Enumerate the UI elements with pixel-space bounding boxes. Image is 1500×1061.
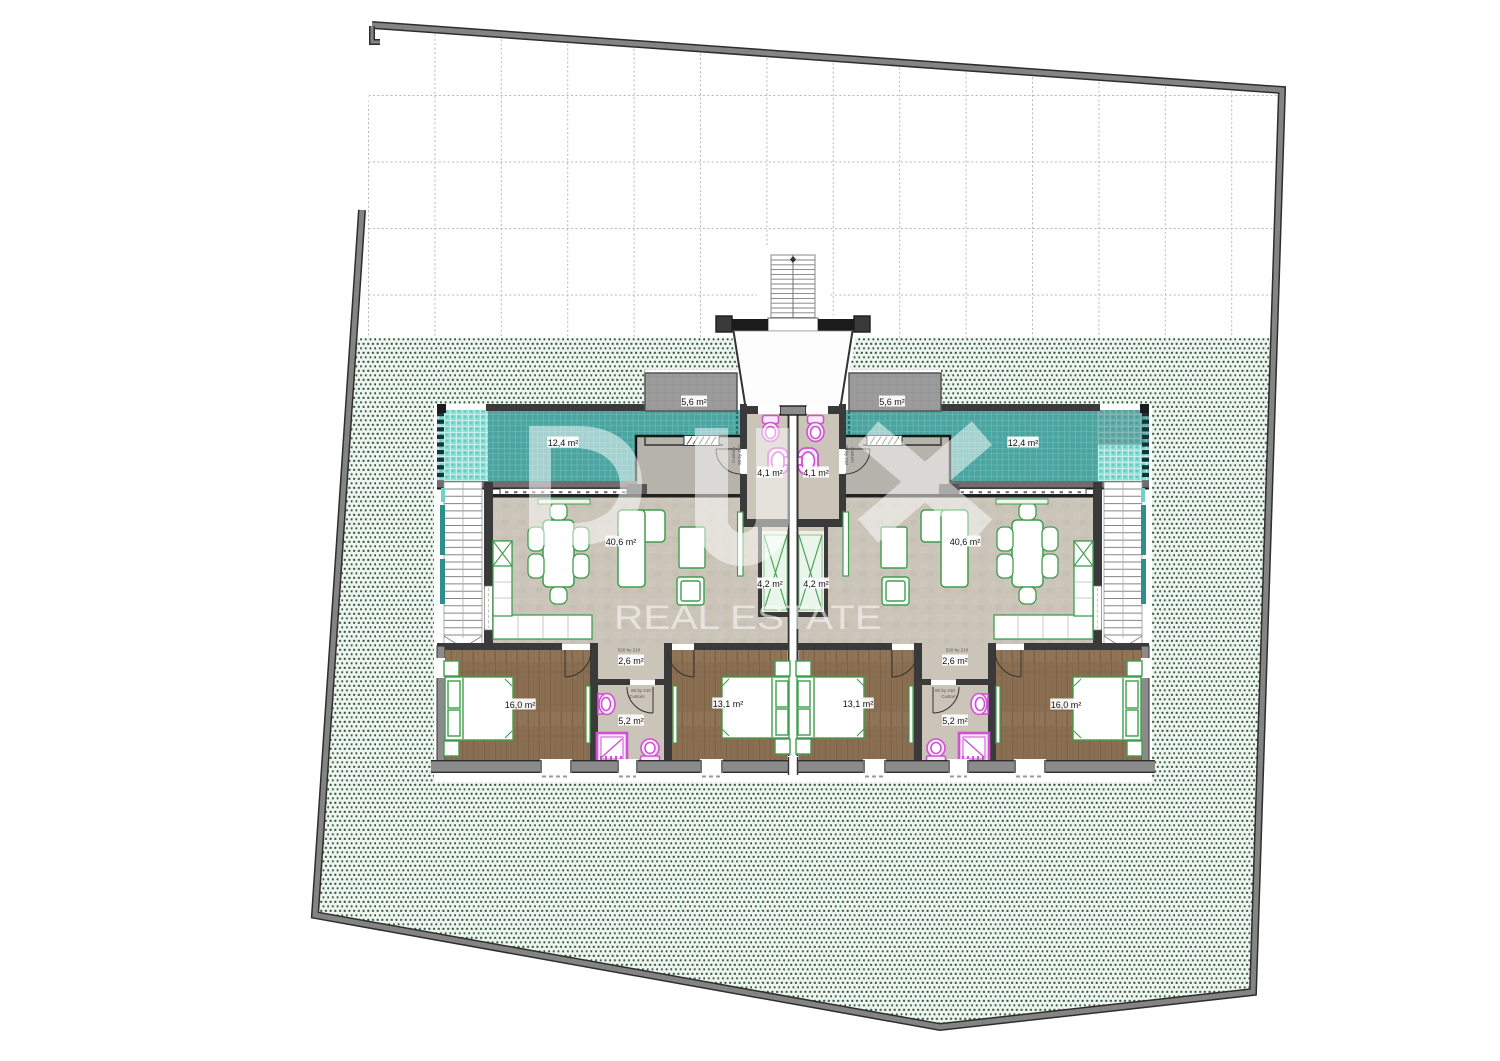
svg-text:5,6 m²: 5,6 m² — [879, 397, 905, 407]
svg-text:16,0 m²: 16,0 m² — [505, 700, 536, 710]
svg-text:5,6 m²: 5,6 m² — [681, 397, 707, 407]
svg-text:90 by 210: 90 by 210 — [844, 445, 849, 465]
svg-text:5,2 m²: 5,2 m² — [618, 716, 644, 726]
svg-text:12,4 m²: 12,4 m² — [548, 438, 579, 448]
svg-text:80 by 210: 80 by 210 — [935, 688, 955, 693]
svg-text:12,4 m²: 12,4 m² — [1008, 438, 1039, 448]
svg-text:4,1 m²: 4,1 m² — [803, 468, 829, 478]
svg-text:520 by 210: 520 by 210 — [618, 648, 641, 653]
svg-text:13,1 m²: 13,1 m² — [713, 699, 744, 709]
svg-text:13,1 m²: 13,1 m² — [843, 699, 874, 709]
svg-text:40,6 m²: 40,6 m² — [950, 537, 981, 547]
svg-text:5,2 m²: 5,2 m² — [942, 716, 968, 726]
svg-text:40,6 m²: 40,6 m² — [606, 537, 637, 547]
svg-text:520 by 210: 520 by 210 — [946, 648, 969, 653]
svg-text:Custom: Custom — [850, 447, 855, 463]
svg-text:4,2 m²: 4,2 m² — [757, 579, 783, 589]
svg-text:80 by 210: 80 by 210 — [631, 688, 651, 693]
svg-text:Custom: Custom — [941, 694, 957, 699]
svg-text:90 by 210: 90 by 210 — [737, 445, 742, 465]
svg-text:4,2 m²: 4,2 m² — [803, 579, 829, 589]
svg-text:16,0 m²: 16,0 m² — [1051, 700, 1082, 710]
svg-text:2,6 m²: 2,6 m² — [618, 656, 644, 666]
svg-text:2,6 m²: 2,6 m² — [942, 656, 968, 666]
svg-text:REAL ESTATE: REAL ESTATE — [614, 599, 882, 637]
svg-text:Custom: Custom — [731, 447, 736, 463]
svg-text:4,1 m²: 4,1 m² — [757, 468, 783, 478]
svg-text:Custom: Custom — [629, 694, 645, 699]
